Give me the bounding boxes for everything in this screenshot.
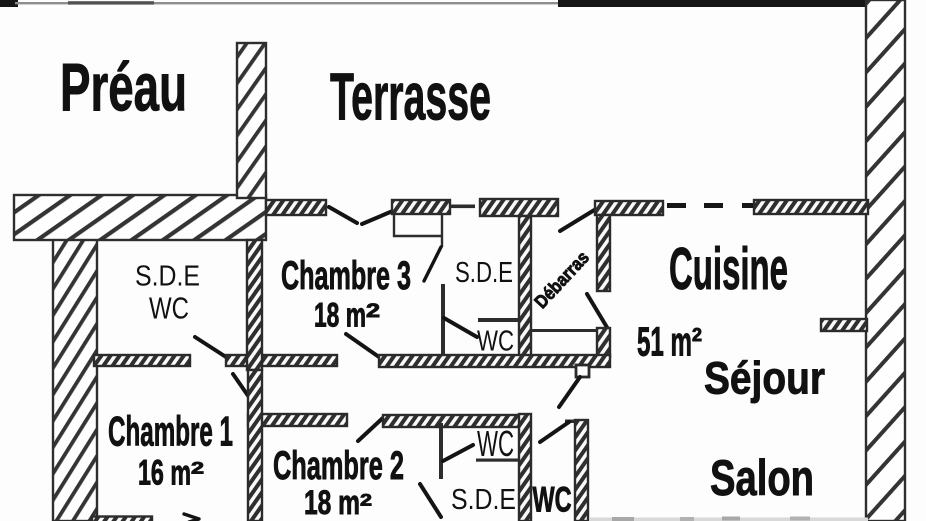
svg-text:S.D.E: S.D.E <box>451 484 516 516</box>
svg-text:Séjour: Séjour <box>704 353 825 404</box>
svg-text:WC: WC <box>533 481 572 520</box>
svg-text:WC: WC <box>149 291 189 326</box>
svg-text:S.D.E: S.D.E <box>135 261 200 293</box>
svg-text:WC: WC <box>477 423 514 464</box>
svg-text:Chambre 1: Chambre 1 <box>108 408 233 455</box>
svg-text:Salon: Salon <box>710 450 814 506</box>
svg-text:WC: WC <box>477 326 514 358</box>
svg-text:Chambre 3: Chambre 3 <box>281 254 411 298</box>
svg-text:Préau: Préau <box>60 50 187 126</box>
svg-text:S.D.E: S.D.E <box>455 257 513 289</box>
svg-text:Chambre 2: Chambre 2 <box>273 444 404 488</box>
svg-text:Terrasse: Terrasse <box>330 60 491 135</box>
svg-text:Cuisine: Cuisine <box>669 236 788 302</box>
